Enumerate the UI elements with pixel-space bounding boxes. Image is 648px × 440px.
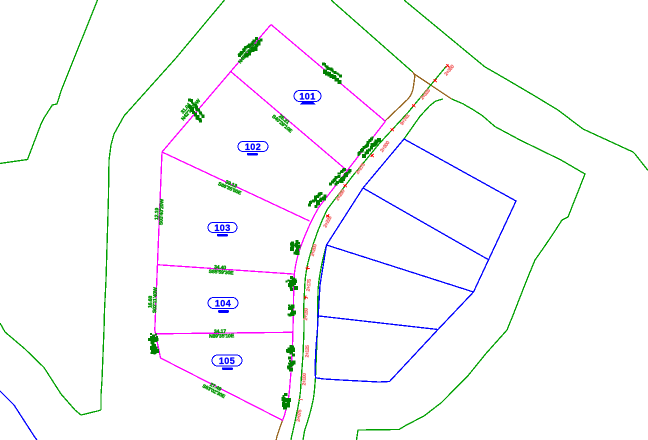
svg-text:2+325: 2+325 [419,88,432,102]
svg-text:2+275: 2+275 [355,162,367,176]
svg-text:2+250: 2+250 [335,188,347,202]
svg-text:2+175: 2+175 [306,278,313,291]
svg-text:2+075: 2+075 [296,409,304,423]
svg-text:102: 102 [245,142,261,152]
svg-text:S85'59'30E: S85'59'30E [209,269,235,277]
svg-text:S03'40'20W: S03'40'20W [159,199,166,226]
svg-text:9+741: 9+741 [399,113,411,127]
svg-text:N89'35'10E: N89'35'10E [209,333,235,339]
svg-text:S02'11'40W: S02'11'40W [152,287,159,313]
svg-text:2+200: 2+200 [310,243,319,257]
svg-text:2+125: 2+125 [305,345,311,358]
svg-text:105: 105 [219,356,235,366]
svg-text:2+150: 2+150 [303,308,310,321]
svg-text:103: 103 [214,223,230,233]
svg-text:104: 104 [215,298,231,308]
svg-text:101: 101 [299,92,315,102]
svg-text:2+100: 2+100 [302,373,308,386]
svg-text:2+350: 2+350 [443,64,456,78]
